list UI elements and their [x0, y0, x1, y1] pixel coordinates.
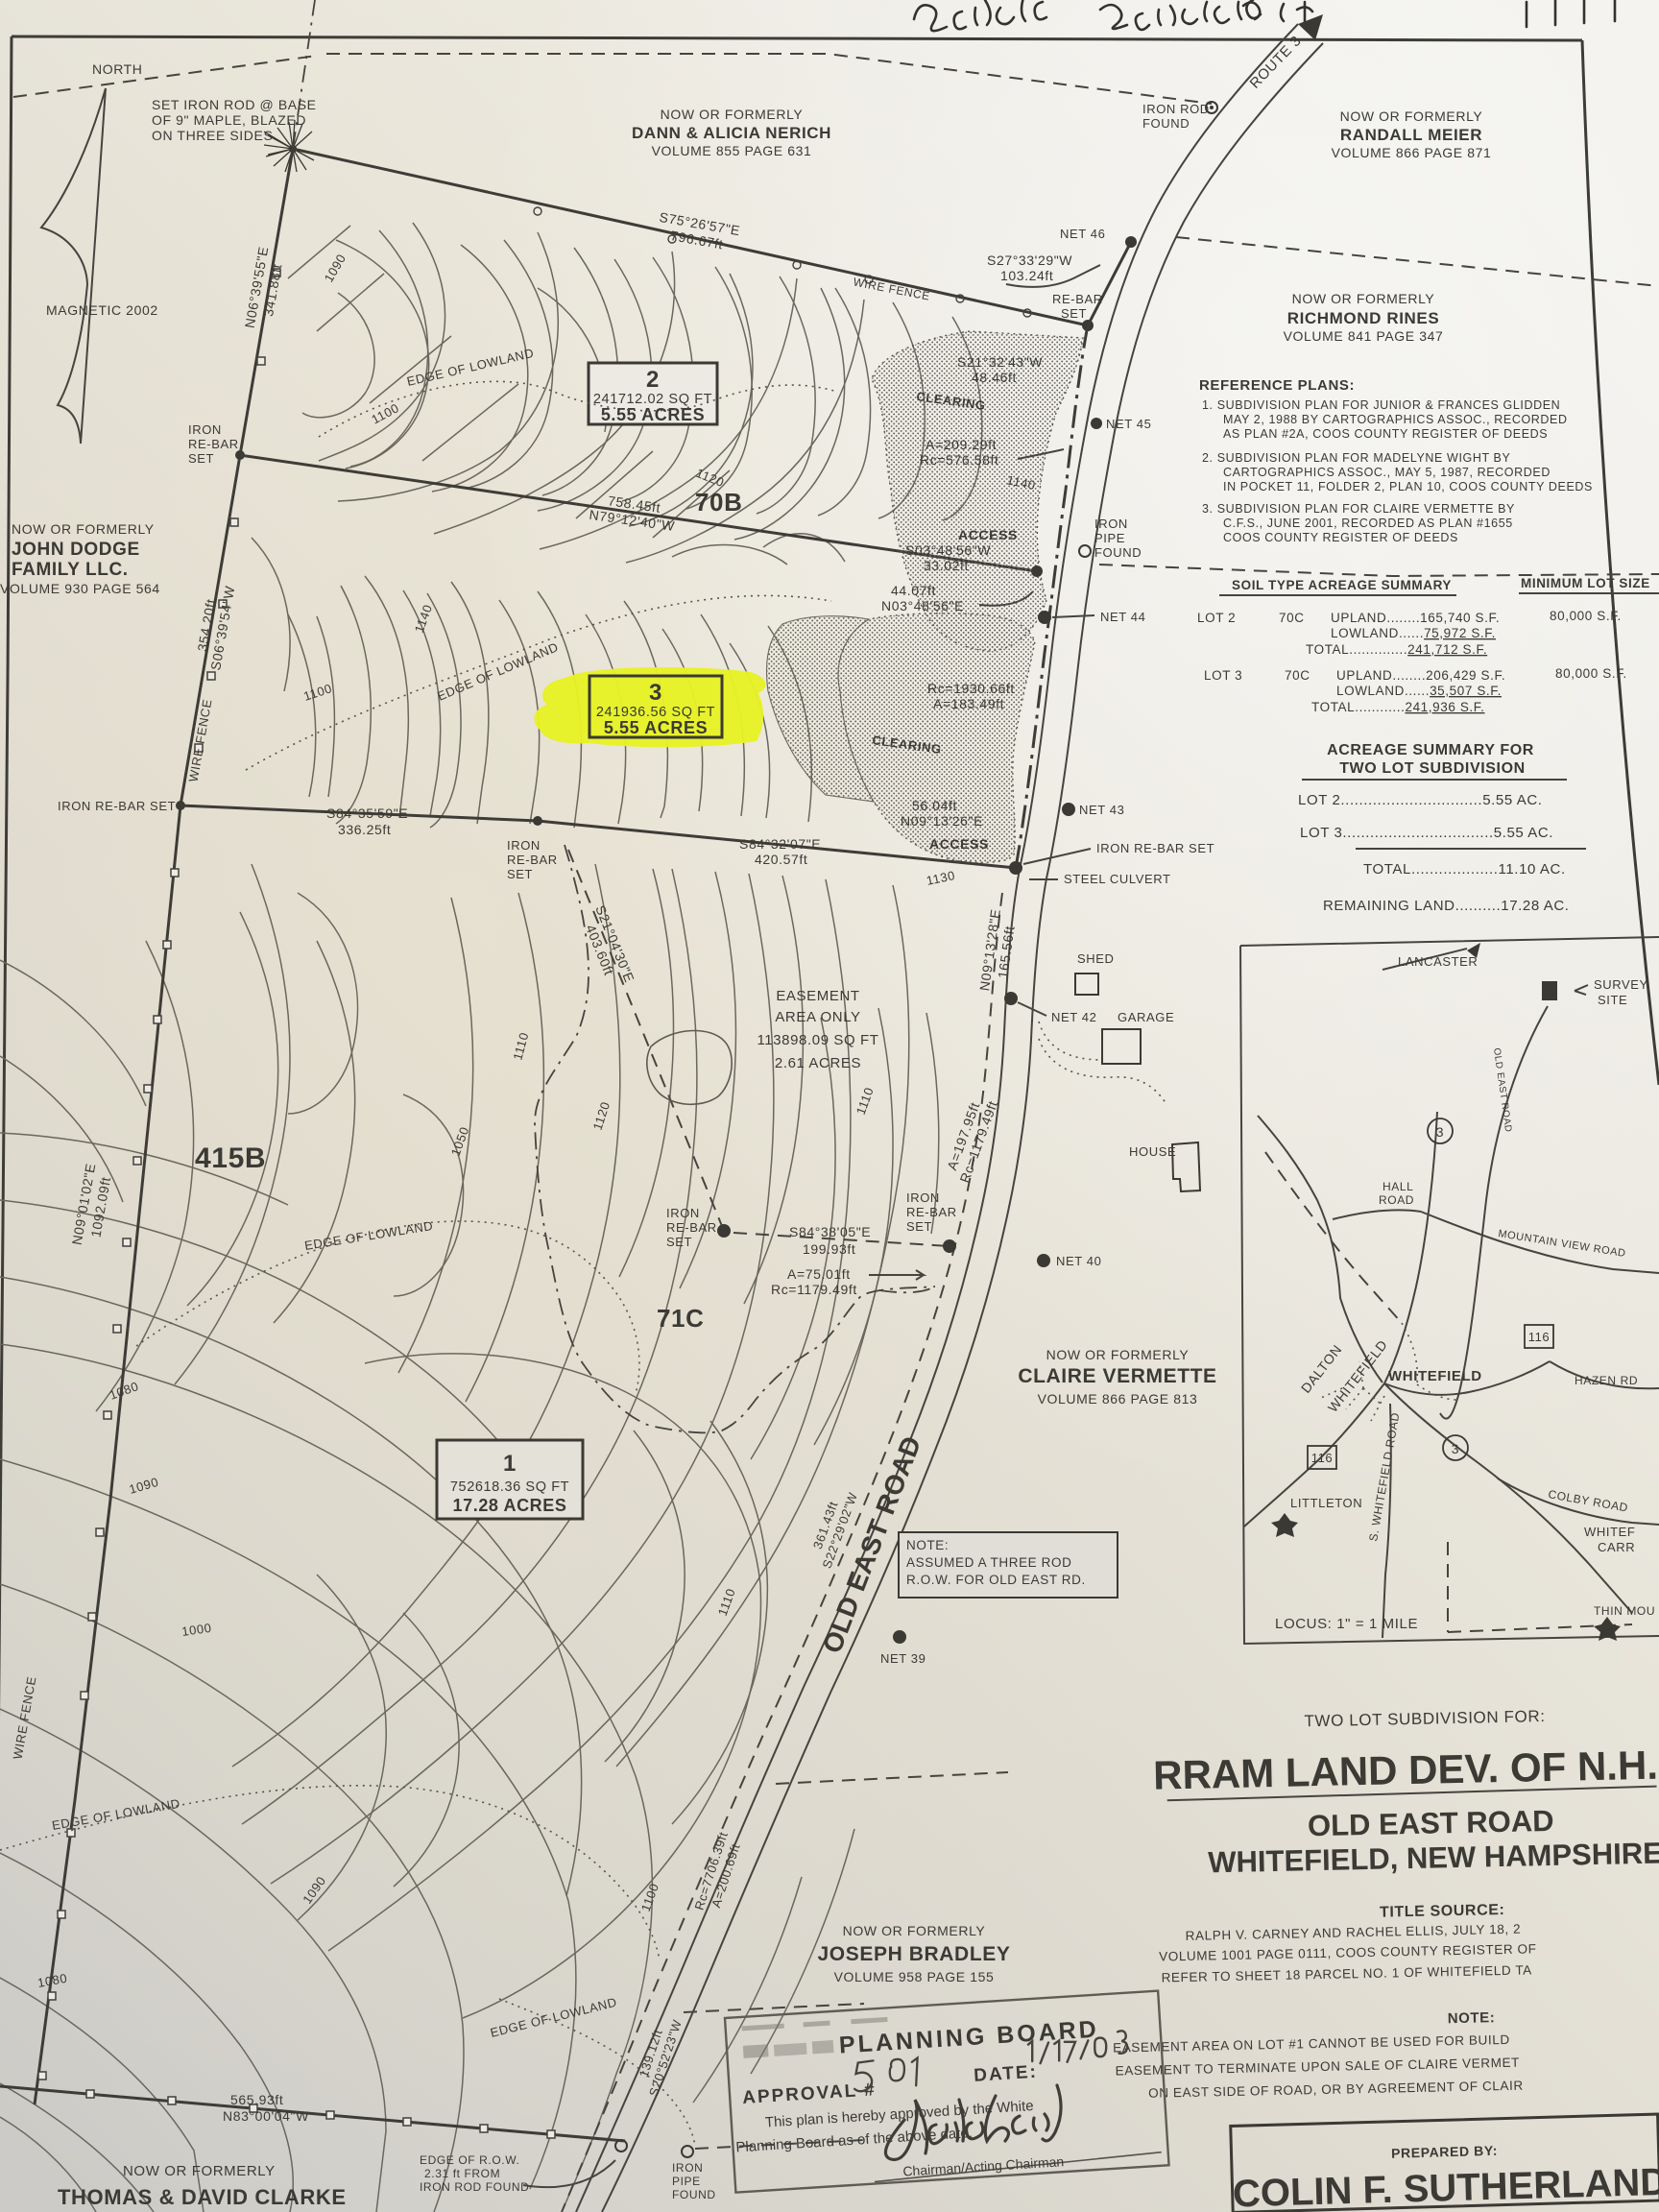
- svg-text:NORTH: NORTH: [92, 61, 143, 77]
- svg-text:LOT 2.........................: LOT 2...............................5.55…: [1298, 792, 1543, 808]
- svg-text:GARAGE: GARAGE: [1118, 1010, 1174, 1024]
- svg-text:IRON ROD FOUND: IRON ROD FOUND: [420, 2180, 529, 2194]
- svg-text:Rc=576.58ft: Rc=576.58ft: [920, 452, 999, 468]
- svg-text:SURVEY: SURVEY: [1594, 977, 1648, 992]
- svg-text:HAZEN RD: HAZEN RD: [1575, 1374, 1638, 1387]
- svg-text:LOWLAND......75,972 S.F.: LOWLAND......75,972 S.F.: [1331, 626, 1496, 640]
- svg-text:ACREAGE SUMMARY FOR: ACREAGE SUMMARY FOR: [1327, 742, 1534, 758]
- svg-text:PIPE: PIPE: [672, 2175, 701, 2188]
- svg-text:ASSUMED A THREE ROD: ASSUMED A THREE ROD: [906, 1555, 1071, 1570]
- svg-text:ACCESS: ACCESS: [929, 836, 989, 852]
- svg-text:NOW OR FORMERLY: NOW OR FORMERLY: [1292, 291, 1435, 306]
- svg-text:565.93ft: 565.93ft: [230, 2092, 283, 2107]
- svg-text:PREPARED BY:: PREPARED BY:: [1391, 2143, 1498, 2161]
- svg-text:IRON: IRON: [906, 1190, 940, 1205]
- svg-text:ROAD: ROAD: [1379, 1193, 1414, 1207]
- svg-text:PIPE: PIPE: [1094, 531, 1125, 545]
- svg-text:420.57ft: 420.57ft: [755, 852, 807, 867]
- svg-text:LANCASTER: LANCASTER: [1398, 954, 1478, 969]
- svg-text:LOT 3: LOT 3: [1204, 668, 1242, 683]
- svg-text:CLAIRE VERMETTE: CLAIRE VERMETTE: [1018, 1365, 1216, 1387]
- svg-text:3. SUBDIVISION PLAN FOR CLAIR: 3. SUBDIVISION PLAN FOR CLAIRE VERMETTE …: [1202, 502, 1515, 516]
- svg-text:ACCESS: ACCESS: [958, 527, 1018, 542]
- svg-text:HALL: HALL: [1382, 1180, 1413, 1193]
- svg-text:NOW OR FORMERLY: NOW OR FORMERLY: [661, 107, 804, 122]
- svg-text:80,000 S.F.: 80,000 S.F.: [1555, 666, 1627, 681]
- svg-text:RE-BAR: RE-BAR: [507, 853, 558, 867]
- svg-text:2.31 ft FROM: 2.31 ft FROM: [424, 2167, 500, 2180]
- svg-text:LOT 3.........................: LOT 3.................................5.…: [1300, 825, 1553, 841]
- svg-text:RICHMOND RINES: RICHMOND RINES: [1287, 309, 1440, 327]
- svg-text:RE-BAR: RE-BAR: [906, 1205, 957, 1219]
- svg-text:VOLUME 841 PAGE 347: VOLUME 841 PAGE 347: [1284, 328, 1444, 344]
- svg-text:VOLUME 866 PAGE 871: VOLUME 866 PAGE 871: [1332, 145, 1492, 160]
- svg-text:UPLAND........206,429 S.F.: UPLAND........206,429 S.F.: [1336, 668, 1505, 683]
- svg-text:MINIMUM LOT SIZE: MINIMUM LOT SIZE: [1521, 576, 1650, 590]
- svg-text:MAGNETIC 2002: MAGNETIC 2002: [46, 302, 158, 318]
- svg-text:33.02ft: 33.02ft: [924, 558, 969, 573]
- svg-text:IRON RE-BAR SET: IRON RE-BAR SET: [58, 799, 176, 813]
- svg-text:FOUND: FOUND: [672, 2188, 716, 2201]
- svg-text:UPLAND........165,740 S.F.: UPLAND........165,740 S.F.: [1331, 611, 1500, 625]
- svg-text:ON THREE SIDES: ON THREE SIDES: [152, 128, 273, 143]
- svg-text:REFERENCE PLANS:: REFERENCE PLANS:: [1199, 377, 1355, 394]
- svg-text:LITTLETON: LITTLETON: [1290, 1496, 1362, 1510]
- svg-text:Rc=1930.66ft: Rc=1930.66ft: [927, 681, 1015, 696]
- svg-text:S84°32'07"E: S84°32'07"E: [739, 836, 821, 852]
- svg-text:A=183.49ft: A=183.49ft: [933, 696, 1004, 711]
- svg-text:LOT 2: LOT 2: [1197, 611, 1236, 625]
- svg-text:IRON: IRON: [188, 422, 222, 437]
- svg-text:CARR: CARR: [1598, 1540, 1635, 1554]
- svg-text:SET: SET: [1061, 306, 1087, 321]
- svg-text:LOCUS: 1" = 1 MILE: LOCUS: 1" = 1 MILE: [1275, 1616, 1418, 1632]
- svg-text:113898.09 SQ FT: 113898.09 SQ FT: [757, 1032, 878, 1048]
- svg-text:THIN MOU: THIN MOU: [1594, 1604, 1655, 1618]
- svg-text:NET 42: NET 42: [1051, 1010, 1096, 1024]
- svg-text:S84°35'59"E: S84°35'59"E: [326, 805, 408, 821]
- svg-text:SITE: SITE: [1598, 993, 1627, 1007]
- svg-text:VOLUME 958 PAGE 155: VOLUME 958 PAGE 155: [834, 1969, 995, 1984]
- svg-text:RE-BAR: RE-BAR: [188, 437, 239, 451]
- svg-text:S84°38'05"E: S84°38'05"E: [789, 1224, 871, 1239]
- svg-text:70C: 70C: [1279, 611, 1305, 625]
- svg-text:56.04ft: 56.04ft: [912, 798, 957, 813]
- svg-text:71C: 71C: [657, 1304, 705, 1333]
- svg-text:17.28 ACRES: 17.28 ACRES: [453, 1496, 567, 1515]
- svg-text:REMAINING LAND..........17.28: REMAINING LAND..........17.28 AC.: [1323, 898, 1570, 914]
- svg-text:A=75.01ft: A=75.01ft: [787, 1266, 851, 1282]
- svg-text:NOW OR FORMERLY: NOW OR FORMERLY: [1046, 1347, 1190, 1362]
- svg-text:VOLUME 855 PAGE 631: VOLUME 855 PAGE 631: [652, 143, 812, 158]
- svg-text:3: 3: [1452, 1441, 1459, 1456]
- svg-text:DANN & ALICIA NERICH: DANN & ALICIA NERICH: [632, 124, 831, 142]
- svg-text:IRON: IRON: [666, 1206, 700, 1220]
- svg-text:NOTE:: NOTE:: [1448, 2009, 1496, 2027]
- svg-text:NET 46: NET 46: [1060, 227, 1105, 241]
- svg-text:70B: 70B: [695, 488, 743, 517]
- svg-text:AS PLAN #2A, COOS COUNTY REGIS: AS PLAN #2A, COOS COUNTY REGISTER OF DEE…: [1223, 427, 1548, 441]
- svg-text:3: 3: [649, 680, 662, 706]
- svg-text:NET 44: NET 44: [1100, 610, 1145, 624]
- svg-text:SET: SET: [666, 1235, 692, 1249]
- svg-text:NOW OR FORMERLY: NOW OR FORMERLY: [1340, 108, 1483, 124]
- svg-text:DATE:: DATE:: [974, 2062, 1039, 2086]
- svg-text:752618.36 SQ FT: 752618.36 SQ FT: [450, 1479, 569, 1495]
- svg-text:RE-BAR: RE-BAR: [666, 1220, 717, 1235]
- svg-text:2. SUBDIVISION PLAN FOR MADEL: 2. SUBDIVISION PLAN FOR MADELYNE WIGHT B…: [1202, 451, 1510, 465]
- svg-text:3: 3: [1436, 1124, 1444, 1140]
- svg-text:JOSEPH BRADLEY: JOSEPH BRADLEY: [818, 1943, 1011, 1965]
- svg-text:EDGE OF R.O.W.: EDGE OF R.O.W.: [420, 2153, 519, 2167]
- svg-text:48.46ft: 48.46ft: [972, 370, 1017, 385]
- svg-text:SET: SET: [906, 1219, 932, 1234]
- svg-text:TWO LOT SUBDIVISION: TWO LOT SUBDIVISION: [1339, 760, 1526, 777]
- svg-text:NOW OR FORMERLY: NOW OR FORMERLY: [843, 1923, 986, 1938]
- svg-text:80,000 S.F.: 80,000 S.F.: [1550, 609, 1622, 623]
- svg-text:S21°32'43"W: S21°32'43"W: [957, 354, 1043, 370]
- svg-text:C.F.S., JUNE 2001, RECORDED AS: C.F.S., JUNE 2001, RECORDED AS PLAN #165…: [1223, 517, 1513, 530]
- svg-text:IRON: IRON: [672, 2161, 703, 2175]
- svg-text:CARTOGRAPHICS ASSOC., MAY 5, 1: CARTOGRAPHICS ASSOC., MAY 5, 1987, RECOR…: [1223, 466, 1551, 479]
- svg-text:NOW OR FORMERLY: NOW OR FORMERLY: [123, 2163, 276, 2179]
- svg-text:TOTAL............241,936 S.F.: TOTAL............241,936 S.F.: [1311, 700, 1484, 714]
- svg-text:N03°48'56"E: N03°48'56"E: [881, 598, 964, 613]
- svg-text:EASEMENT: EASEMENT: [776, 988, 859, 1004]
- svg-text:5.55 ACRES: 5.55 ACRES: [601, 405, 705, 424]
- svg-text:IRON: IRON: [507, 838, 541, 853]
- svg-text:NOW OR FORMERLY: NOW OR FORMERLY: [12, 521, 155, 537]
- svg-text:LOWLAND......35,507 S.F.: LOWLAND......35,507 S.F.: [1336, 684, 1502, 698]
- svg-text:NOTE:: NOTE:: [906, 1538, 949, 1552]
- svg-text:NET 40: NET 40: [1056, 1254, 1101, 1268]
- svg-text:A=209.29ft: A=209.29ft: [926, 437, 997, 452]
- svg-text:IN POCKET 11, FOLDER 2, PLAN 1: IN POCKET 11, FOLDER 2, PLAN 10, COOS CO…: [1223, 480, 1593, 493]
- svg-text:1: 1: [503, 1451, 517, 1477]
- svg-text:NET 43: NET 43: [1079, 803, 1124, 817]
- svg-text:103.24ft: 103.24ft: [1000, 268, 1053, 283]
- svg-text:FOUND: FOUND: [1142, 116, 1190, 131]
- svg-text:R.O.W. FOR OLD EAST RD.: R.O.W. FOR OLD EAST RD.: [906, 1573, 1086, 1587]
- svg-text:OF 9" MAPLE, BLAZED: OF 9" MAPLE, BLAZED: [152, 112, 306, 128]
- svg-text:TITLE SOURCE:: TITLE SOURCE:: [1380, 1902, 1505, 1921]
- svg-text:SET: SET: [188, 451, 214, 466]
- svg-text:116: 116: [1311, 1451, 1334, 1465]
- svg-text:5.55 ACRES: 5.55 ACRES: [604, 718, 708, 737]
- svg-text:336.25ft: 336.25ft: [338, 822, 391, 837]
- svg-text:IRON RE-BAR SET: IRON RE-BAR SET: [1096, 841, 1214, 855]
- svg-text:OLD EAST ROAD: OLD EAST ROAD: [1308, 1804, 1554, 1842]
- svg-text:MAY 2, 1988 BY CARTOGRAPHICS A: MAY 2, 1988 BY CARTOGRAPHICS ASSOC., REC…: [1223, 413, 1568, 426]
- svg-text:TOTAL...................11.10: TOTAL...................11.10 AC.: [1363, 861, 1566, 878]
- svg-text:N09°13'26"E: N09°13'26"E: [901, 813, 983, 829]
- svg-text:WHITEFIELD: WHITEFIELD: [1388, 1368, 1482, 1384]
- svg-text:AREA ONLY: AREA ONLY: [775, 1009, 860, 1025]
- svg-text:S27°33'29"W: S27°33'29"W: [987, 252, 1072, 268]
- svg-text:116: 116: [1528, 1330, 1551, 1344]
- svg-text:STEEL CULVERT: STEEL CULVERT: [1064, 872, 1171, 886]
- svg-text:VOLUME 930 PAGE 564: VOLUME 930 PAGE 564: [0, 581, 160, 596]
- svg-text:JOHN DODGE: JOHN DODGE: [12, 540, 140, 560]
- svg-text:RE-BAR: RE-BAR: [1052, 292, 1103, 306]
- svg-text:S03°48'56"W: S03°48'56"W: [905, 542, 991, 558]
- svg-text:HOUSE: HOUSE: [1129, 1144, 1176, 1159]
- svg-text:SHED: SHED: [1077, 951, 1115, 966]
- svg-text:RANDALL MEIER: RANDALL MEIER: [1340, 126, 1482, 144]
- svg-text:44.07ft: 44.07ft: [891, 583, 936, 598]
- svg-text:1. SUBDIVISION PLAN FOR JUNIO: 1. SUBDIVISION PLAN FOR JUNIOR & FRANCES…: [1202, 398, 1560, 412]
- svg-text:COOS COUNTY REGISTER OF DEEDS: COOS COUNTY REGISTER OF DEEDS: [1223, 531, 1458, 544]
- svg-text:TOTAL..............241,712 S.F: TOTAL..............241,712 S.F.: [1306, 642, 1487, 657]
- svg-text:VOLUME 866 PAGE 813: VOLUME 866 PAGE 813: [1038, 1391, 1198, 1407]
- svg-text:SOIL TYPE ACREAGE SUMMARY: SOIL TYPE ACREAGE SUMMARY: [1232, 578, 1452, 592]
- svg-text:THOMAS & DAVID CLARKE: THOMAS & DAVID CLARKE: [58, 2185, 347, 2209]
- svg-text:WHITEF: WHITEF: [1584, 1525, 1635, 1539]
- svg-text:SET IRON ROD @ BASE: SET IRON ROD @ BASE: [152, 97, 317, 112]
- svg-text:199.93ft: 199.93ft: [803, 1241, 855, 1257]
- svg-text:2.61 ACRES: 2.61 ACRES: [775, 1055, 861, 1071]
- svg-text:Rc=1179.49ft: Rc=1179.49ft: [771, 1282, 857, 1297]
- svg-text:70C: 70C: [1285, 668, 1310, 683]
- svg-text:FOUND: FOUND: [1094, 545, 1142, 560]
- svg-text:IRON ROD: IRON ROD: [1142, 102, 1210, 116]
- svg-text:NET 45: NET 45: [1106, 417, 1151, 431]
- svg-text:FAMILY LLC.: FAMILY LLC.: [12, 560, 129, 580]
- svg-text:IRON: IRON: [1094, 517, 1128, 531]
- svg-text:2: 2: [646, 367, 660, 393]
- svg-text:NET 39: NET 39: [880, 1651, 926, 1666]
- svg-text:415B: 415B: [195, 1142, 266, 1174]
- svg-text:SET: SET: [507, 867, 533, 881]
- svg-text:N83°00'04"W: N83°00'04"W: [223, 2108, 309, 2124]
